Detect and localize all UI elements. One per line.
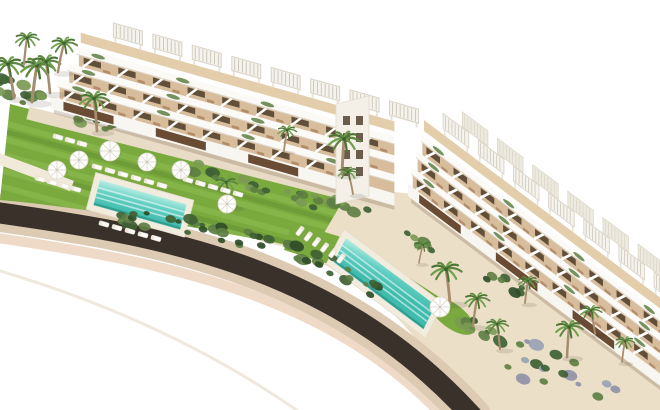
parasol-pole: [78, 159, 80, 161]
palm-shadow: [281, 151, 295, 155]
palm-crown: [567, 325, 570, 328]
tower-window: [356, 150, 363, 159]
palm-shadow: [20, 63, 38, 68]
palm-crown: [624, 340, 626, 342]
palm-crown: [590, 309, 593, 312]
palm-shadow: [45, 92, 67, 98]
shrub: [256, 241, 266, 249]
palm-crown: [286, 129, 288, 131]
palm-shadow: [591, 334, 607, 339]
palm-crown: [527, 280, 529, 282]
tower-window: [356, 116, 363, 125]
palm-crown: [62, 42, 65, 45]
palm-shadow: [522, 303, 537, 307]
palm-shadow: [496, 349, 513, 354]
palm-shadow: [350, 194, 365, 198]
shrub: [325, 269, 334, 277]
palm-crown: [342, 137, 346, 141]
palm-crown: [6, 62, 10, 66]
palm-crown: [92, 97, 96, 101]
parasol-pole: [146, 161, 148, 163]
palm-crown: [26, 37, 29, 40]
palm-crown: [496, 323, 499, 326]
palm-shadow: [416, 263, 429, 267]
palm-crown: [347, 171, 349, 173]
parasol-pole: [109, 150, 111, 152]
palm-shadow: [562, 356, 583, 362]
palm-shadow: [469, 325, 488, 330]
architectural-render-image: [0, 0, 660, 410]
parasol-pole: [439, 306, 441, 308]
palm-crown: [422, 244, 424, 246]
palm-crown: [444, 267, 448, 271]
palm-crown: [476, 297, 479, 300]
parasol-pole: [180, 169, 182, 171]
palm-trunk: [342, 139, 344, 174]
palm-crown: [44, 60, 47, 63]
palm-trunk: [24, 38, 27, 64]
parasol-pole: [226, 203, 228, 205]
palm-shadow: [54, 71, 74, 77]
palm-shadow: [92, 130, 115, 137]
palm-crown: [225, 181, 228, 184]
shrub: [15, 78, 32, 92]
palm-shadow: [619, 362, 633, 366]
resort-aerial-render: [0, 0, 660, 410]
palm-shadow: [26, 100, 51, 107]
parasol-pole: [56, 169, 58, 171]
tower-window: [343, 116, 350, 125]
